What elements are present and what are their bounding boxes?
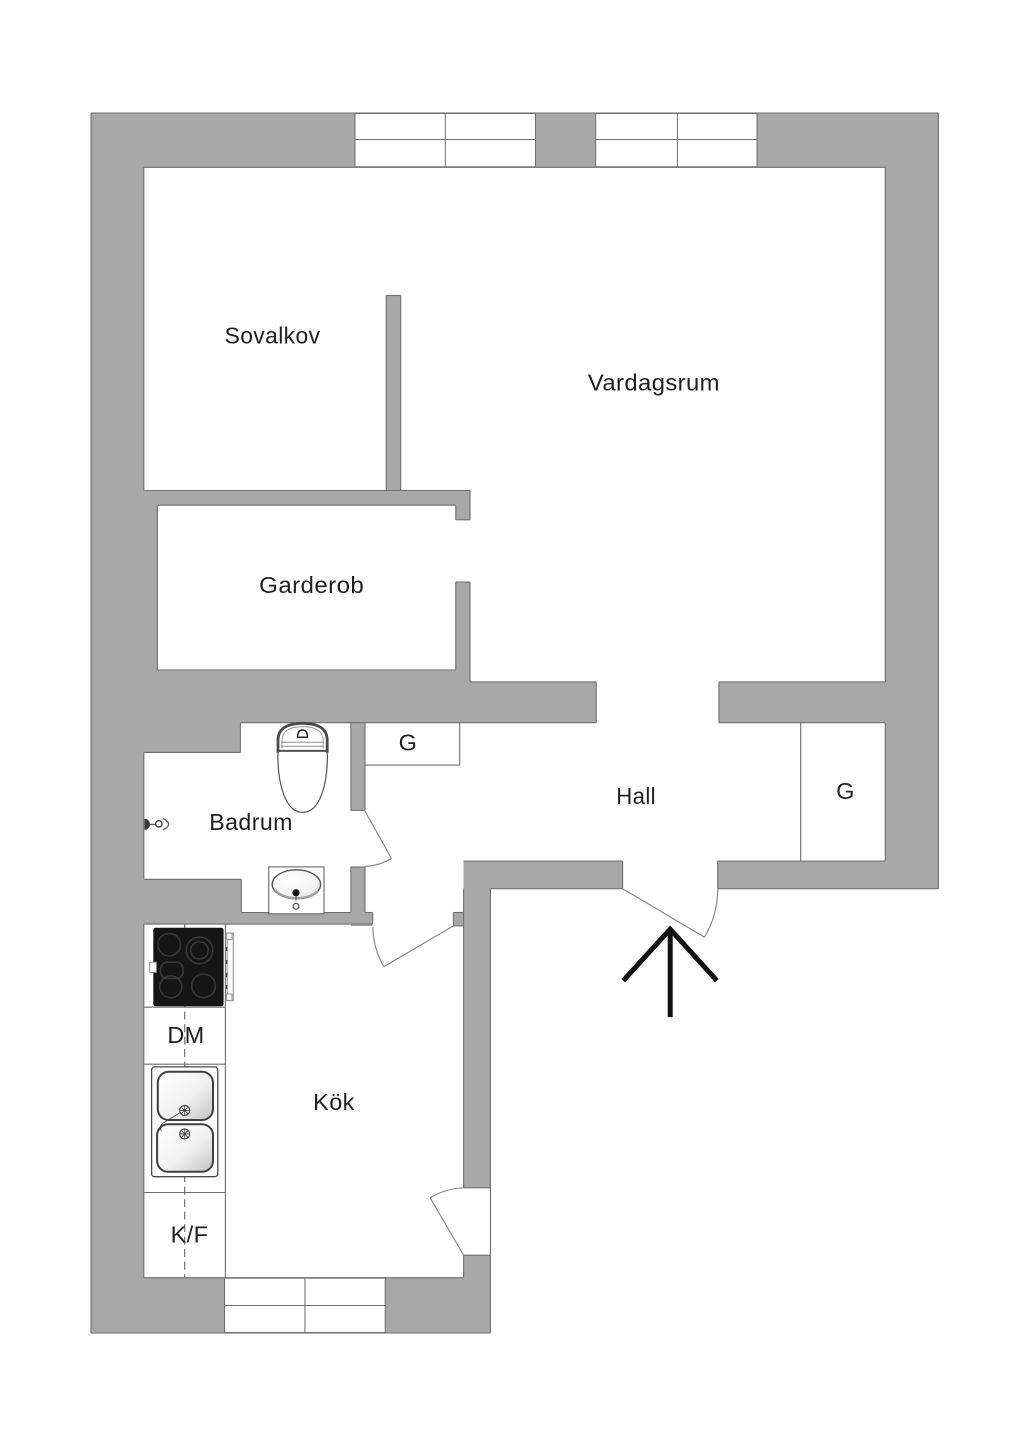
svg-text:Garderob: Garderob <box>259 572 364 598</box>
svg-text:Hall: Hall <box>616 783 656 809</box>
svg-text:Badrum: Badrum <box>209 809 292 835</box>
svg-text:G: G <box>399 729 418 755</box>
svg-text:K/F: K/F <box>171 1221 209 1247</box>
svg-text:G: G <box>836 778 855 804</box>
svg-text:Kök: Kök <box>313 1089 355 1115</box>
svg-text:Sovalkov: Sovalkov <box>225 323 321 349</box>
svg-text:Vardagsrum: Vardagsrum <box>588 369 720 395</box>
svg-text:DM: DM <box>167 1022 204 1048</box>
